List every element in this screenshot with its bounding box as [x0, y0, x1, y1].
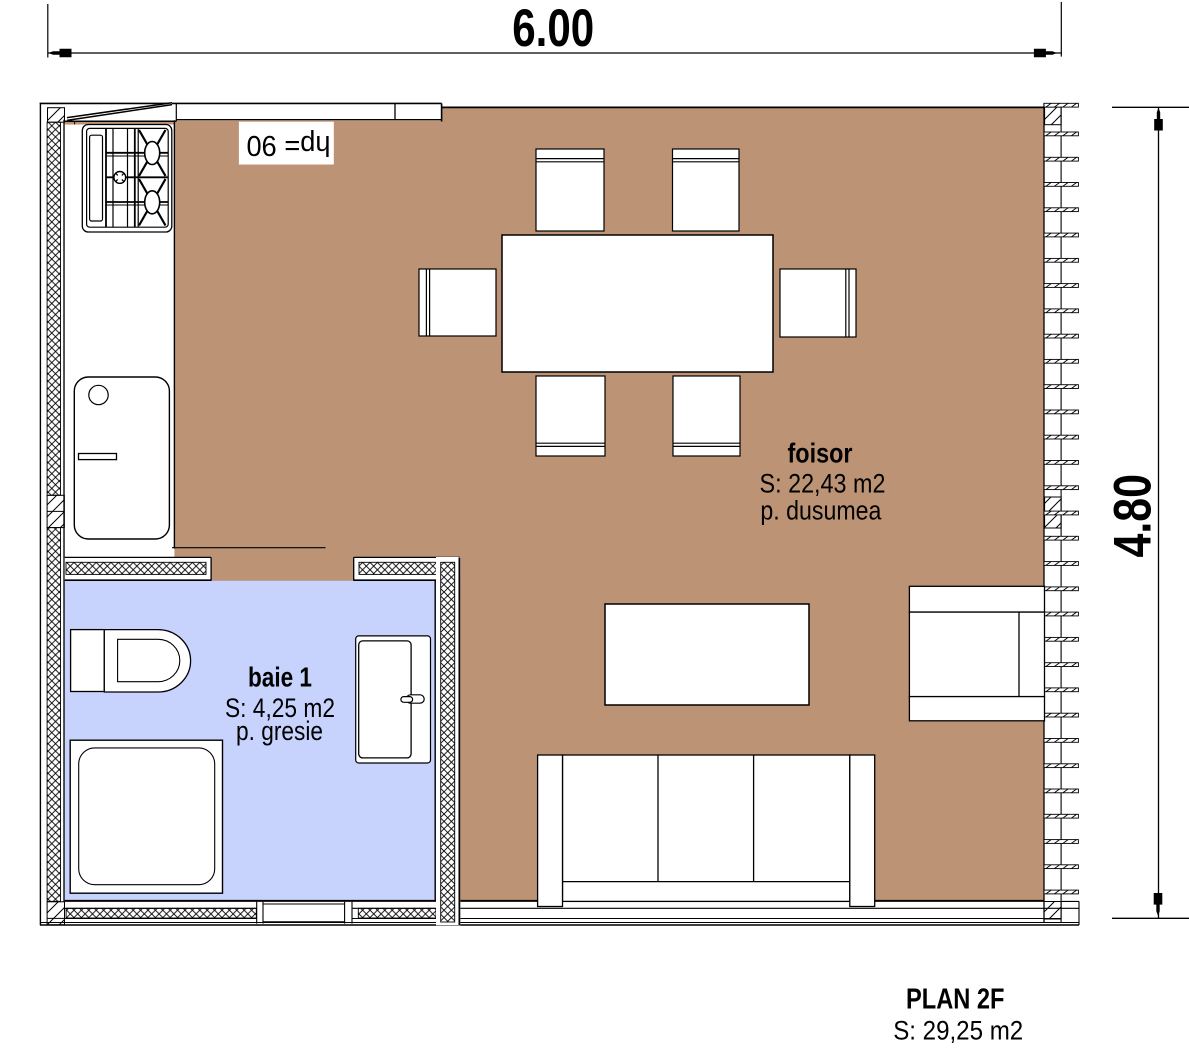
- svg-text:4.80: 4.80: [1104, 474, 1163, 558]
- svg-text:hp= 90: hp= 90: [247, 129, 331, 161]
- svg-text:foisor: foisor: [788, 437, 853, 468]
- svg-text:p. gresie: p. gresie: [236, 716, 323, 746]
- svg-text:6.00: 6.00: [512, 0, 594, 58]
- svg-text:PLAN 2F: PLAN 2F: [906, 983, 1005, 1015]
- svg-text:p. dusumea: p. dusumea: [760, 496, 882, 526]
- svg-text:S: 22,43 m2: S: 22,43 m2: [760, 469, 886, 499]
- svg-text:baie 1: baie 1: [248, 661, 312, 692]
- svg-text:S: 29,25 m2: S: 29,25 m2: [893, 1016, 1023, 1046]
